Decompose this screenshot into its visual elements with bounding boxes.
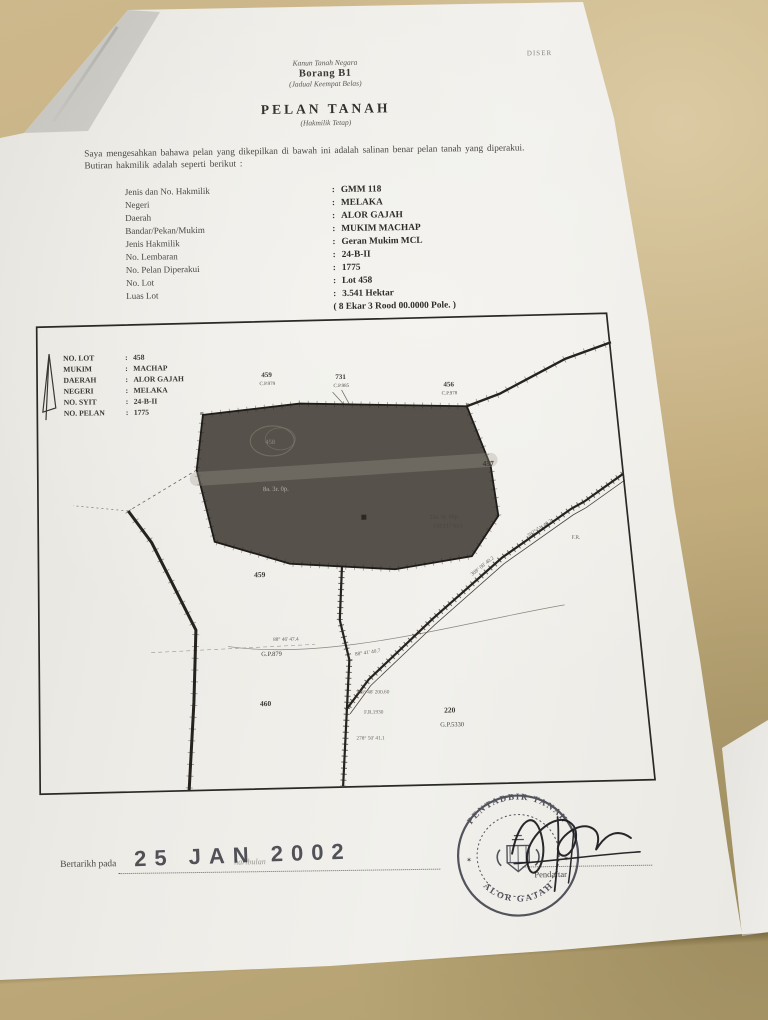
road-line-northeast — [466, 342, 612, 406]
plan-info-separator: : — [125, 375, 133, 384]
detail-row: No. Lot:Lot 458 — [126, 275, 372, 289]
plan-info-separator: : — [126, 408, 134, 417]
road-ticks — [128, 510, 198, 791]
detail-separator: : — [333, 249, 342, 259]
bearing-label: F.R. — [572, 535, 581, 541]
plan-info-separator: : — [126, 386, 134, 395]
detail-separator: : — [332, 236, 341, 246]
dashed-boundary — [73, 505, 128, 512]
map-label: 459 — [254, 570, 266, 579]
detail-value: 24-B-II — [342, 250, 371, 260]
map-label: C.P.978 — [442, 391, 458, 396]
map-label: G.P.879 — [261, 651, 282, 658]
bearing-label: 302° 51' 40.2 — [526, 517, 554, 539]
map-label: 456 — [443, 380, 454, 388]
plan-info-value: 24-B-II — [134, 397, 158, 406]
plan-info-value: ALOR GAJAH — [133, 374, 184, 384]
dashed-boundary — [130, 470, 198, 510]
plan-info-label: DAERAH — [63, 375, 125, 385]
detail-label: No. Pelan Diperakui — [126, 262, 333, 275]
plan-info-row: NO. SYIT:24-B-II — [64, 397, 158, 407]
detail-row: Luas Lot:3.541 Hektar — [126, 287, 394, 302]
plan-info-separator: : — [125, 364, 133, 373]
plan-info-value: 1775 — [134, 408, 149, 417]
faint-boundary-line — [228, 605, 566, 651]
detail-separator: : — [332, 184, 341, 194]
plan-info-row: NEGERI:MELAKA — [64, 385, 168, 395]
map-label: G.P.5330 — [440, 721, 464, 728]
circled-lot-number: 458 — [265, 439, 275, 446]
detail-separator: : — [333, 262, 342, 272]
plan-info-value: MELAKA — [134, 385, 168, 394]
detail-label: Luas Lot — [126, 288, 333, 301]
photo-frame: DISER Kanun Tanah Negara Borang B1 (Jadu… — [0, 0, 768, 1020]
map-label: 457 — [483, 459, 495, 468]
stamp-star: ✶ — [466, 856, 472, 864]
corner-note: DISER — [527, 49, 552, 57]
plan-info-row: MUKIM:MACHAP — [63, 363, 167, 373]
plan-info-label: NEGERI — [64, 386, 126, 396]
detail-row: Negeri:MELAKA — [125, 196, 383, 211]
plan-info-separator: : — [126, 397, 134, 406]
detail-label: Jenis dan No. Hakmilik — [125, 184, 332, 197]
form-header: Kanun Tanah Negara Borang B1 (Jadual Kee… — [200, 56, 451, 128]
detail-separator: : — [332, 223, 341, 233]
bearing-label: F.R.1930 — [364, 709, 384, 715]
detail-value: GMM 118 — [341, 184, 382, 195]
detail-label: Jenis Hakmilik — [125, 236, 332, 249]
document-content: DISER Kanun Tanah Negara Borang B1 (Jadu… — [0, 0, 768, 1020]
detail-separator: : — [333, 288, 342, 298]
plan-info-value: 458 — [133, 353, 145, 362]
detail-separator: : — [332, 197, 341, 207]
detail-value: Geran Mukim MCL — [341, 236, 422, 247]
plan-info-row: DAERAH:ALOR GAJAH — [63, 374, 184, 385]
road-line-west — [128, 510, 198, 791]
plan-info-label: NO. LOT — [63, 353, 125, 363]
detail-value: ALOR GAJAH — [341, 210, 403, 221]
detail-separator: : — [332, 210, 341, 220]
certification-paragraph: Saya mengesahkan bahawa pelan yang dikep… — [84, 142, 640, 173]
signature — [497, 790, 659, 902]
detail-row: No. Lembaran:24-B-II — [126, 249, 371, 263]
bearing-label: 358° 48' 200.60 — [356, 688, 390, 695]
north-arrow-icon — [42, 354, 56, 420]
detail-row: Jenis Hakmilik:Geran Mukim MCL — [125, 235, 422, 250]
detail-value: 1775 — [342, 263, 361, 273]
detail-label: Negeri — [125, 197, 332, 210]
lot-458-shaded-parcel — [196, 401, 499, 572]
detail-value: MUKIM MACHAP — [341, 223, 420, 234]
plan-info-value: MACHAP — [133, 363, 167, 372]
map-label: 459 — [261, 371, 272, 379]
document-paper: DISER Kanun Tanah Negara Borang B1 (Jadu… — [0, 0, 768, 1020]
bearing-label: 278° 50' 41.1 — [356, 734, 385, 741]
plan-info-label: NO. SYIT — [64, 397, 126, 407]
detail-value: Lot 458 — [342, 276, 372, 286]
map-label: C.P.979 — [259, 382, 275, 387]
detail-value: MELAKA — [341, 197, 383, 208]
map-label: 25a. 0r. 00p. — [429, 514, 459, 520]
detail-separator: : — [333, 275, 342, 285]
detail-row: Jenis dan No. Hakmilik:GMM 118 — [125, 183, 382, 198]
survey-mark — [361, 515, 366, 520]
faint-dashed-line — [151, 644, 315, 652]
map-label: C.P.985 — [333, 384, 349, 389]
map-label: 731 — [335, 373, 346, 381]
detail-label: No. Lot — [126, 275, 333, 288]
lot-area-label: 8a. 3r. 0p. — [263, 486, 289, 493]
detail-label: No. Lembaran — [126, 249, 333, 262]
map-label: (10.117 ha.) — [433, 522, 462, 529]
plan-info-label: NO. PELAN — [64, 408, 126, 418]
map-label: 220 — [444, 705, 456, 714]
detail-row: No. Pelan Diperakui:1775 — [126, 262, 361, 276]
bearing-label: 88° 41' 40.7 — [355, 647, 382, 658]
plan-info-separator: : — [125, 353, 133, 362]
map-label: 460 — [260, 699, 272, 708]
detail-value: 3.541 Hektar — [342, 288, 394, 299]
dated-label: Bertarikh pada — [60, 859, 116, 870]
plan-info-row: NO. LOT:458 — [63, 353, 145, 363]
plan-info-label: MUKIM — [63, 364, 125, 374]
plan-info-row: NO. PELAN:1775 — [64, 408, 149, 418]
road-line-south — [339, 565, 351, 786]
detail-label: Daerah — [125, 210, 332, 223]
bearing-label: 88° 46' 47.4 — [273, 636, 299, 643]
detail-label: Bandar/Pekan/Mukim — [125, 223, 332, 236]
